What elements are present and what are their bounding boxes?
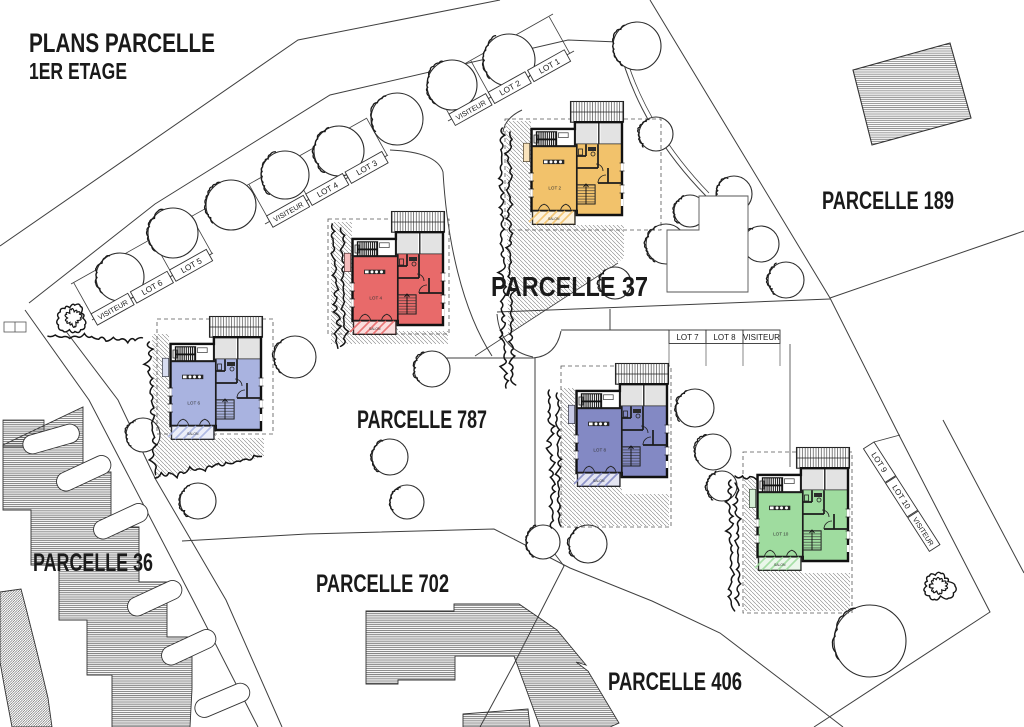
svg-text:PARCELLE 36: PARCELLE 36	[33, 549, 153, 577]
svg-text:LOT 8: LOT 8	[593, 448, 606, 453]
svg-text:LOT 10: LOT 10	[773, 532, 789, 537]
svg-text:SALON: SALON	[369, 327, 381, 331]
svg-text:PLANS PARCELLE: PLANS PARCELLE	[29, 28, 215, 58]
svg-text:LOT 2: LOT 2	[548, 186, 561, 191]
svg-text:PARCELLE 37: PARCELLE 37	[491, 271, 648, 302]
svg-text:PARCELLE 189: PARCELLE 189	[822, 187, 954, 215]
svg-text:SALON: SALON	[593, 479, 605, 483]
svg-text:VISITEUR: VISITEUR	[743, 333, 780, 342]
svg-text:SALON: SALON	[548, 217, 560, 221]
svg-text:SALON: SALON	[774, 563, 786, 567]
svg-text:PARCELLE 702: PARCELLE 702	[316, 570, 449, 598]
svg-text:LOT 8: LOT 8	[713, 333, 736, 342]
svg-text:LOT 6: LOT 6	[187, 401, 200, 406]
svg-text:PARCELLE 406: PARCELLE 406	[608, 668, 742, 696]
svg-text:1ER ETAGE: 1ER ETAGE	[29, 58, 127, 84]
svg-text:LOT 4: LOT 4	[369, 296, 382, 301]
svg-text:LOT 7: LOT 7	[676, 333, 699, 342]
svg-text:SALON: SALON	[187, 432, 199, 436]
svg-text:PARCELLE 787: PARCELLE 787	[357, 406, 487, 434]
